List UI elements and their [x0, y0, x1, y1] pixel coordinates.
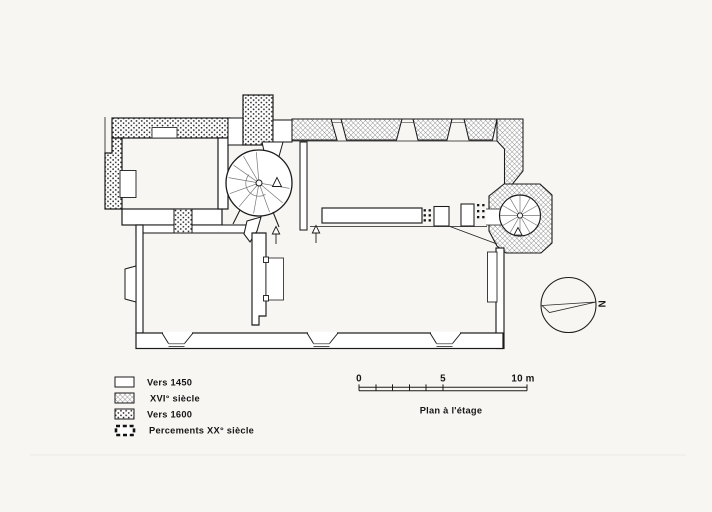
window-pier — [413, 119, 452, 140]
legend-label: Vers 1450 — [147, 378, 192, 388]
scale-label-0: 0 — [356, 374, 362, 385]
legend-swatch-plain — [115, 377, 134, 387]
floor-plan-drawing: N Vers 1450 XVI° siècle Vers 1600 Percem… — [0, 0, 712, 512]
window-pier — [292, 119, 337, 140]
fireplace — [266, 258, 284, 300]
wall-patch-1600 — [174, 209, 192, 233]
legend-item-vers-1600: Vers 1600 — [115, 409, 192, 420]
room-south-wall — [122, 209, 222, 225]
scanned-floor-plan-photo: N Vers 1450 XVI° siècle Vers 1600 Percem… — [0, 0, 712, 512]
window-pier — [464, 119, 497, 140]
legend-label: Percements XX° siècle — [149, 426, 254, 436]
fireplace-recess — [120, 171, 136, 198]
legend-swatch-stipple — [115, 409, 134, 419]
south-wall-windows — [136, 332, 503, 349]
right-spiral-stair-tower — [486, 184, 552, 253]
scale-label-5: 5 — [440, 374, 446, 385]
legend-swatch-crosshatch — [115, 393, 134, 403]
stair-newel — [517, 213, 522, 218]
chimney-1600 — [243, 95, 273, 145]
partition-wall — [136, 225, 252, 233]
west-wall — [136, 225, 143, 333]
east-fireplace — [488, 252, 498, 302]
long-partition-wall — [322, 208, 422, 223]
legend-label: Vers 1600 — [147, 410, 192, 420]
window-pier — [341, 119, 402, 140]
wall-notch — [152, 128, 177, 139]
plan-caption: Plan à l'étage — [420, 406, 483, 416]
central-partition-wall — [252, 233, 266, 325]
room-divider-wall — [300, 142, 307, 230]
legend-item-vers-1450: Vers 1450 — [115, 377, 192, 388]
paper-background — [0, 0, 712, 512]
legend-swatch-black-dash — [116, 426, 134, 435]
legend-item-xvi-siecle: XVI° siècle — [115, 393, 200, 404]
wall-pier — [461, 204, 474, 226]
scale-label-10m: 10 m — [511, 374, 534, 385]
legend-label: XVI° siècle — [150, 394, 200, 404]
wall-pier — [434, 207, 449, 227]
compass-letter: N — [596, 300, 607, 307]
stair-newel — [256, 180, 262, 186]
room-east-wall — [218, 138, 228, 209]
west-buttress — [125, 266, 136, 302]
